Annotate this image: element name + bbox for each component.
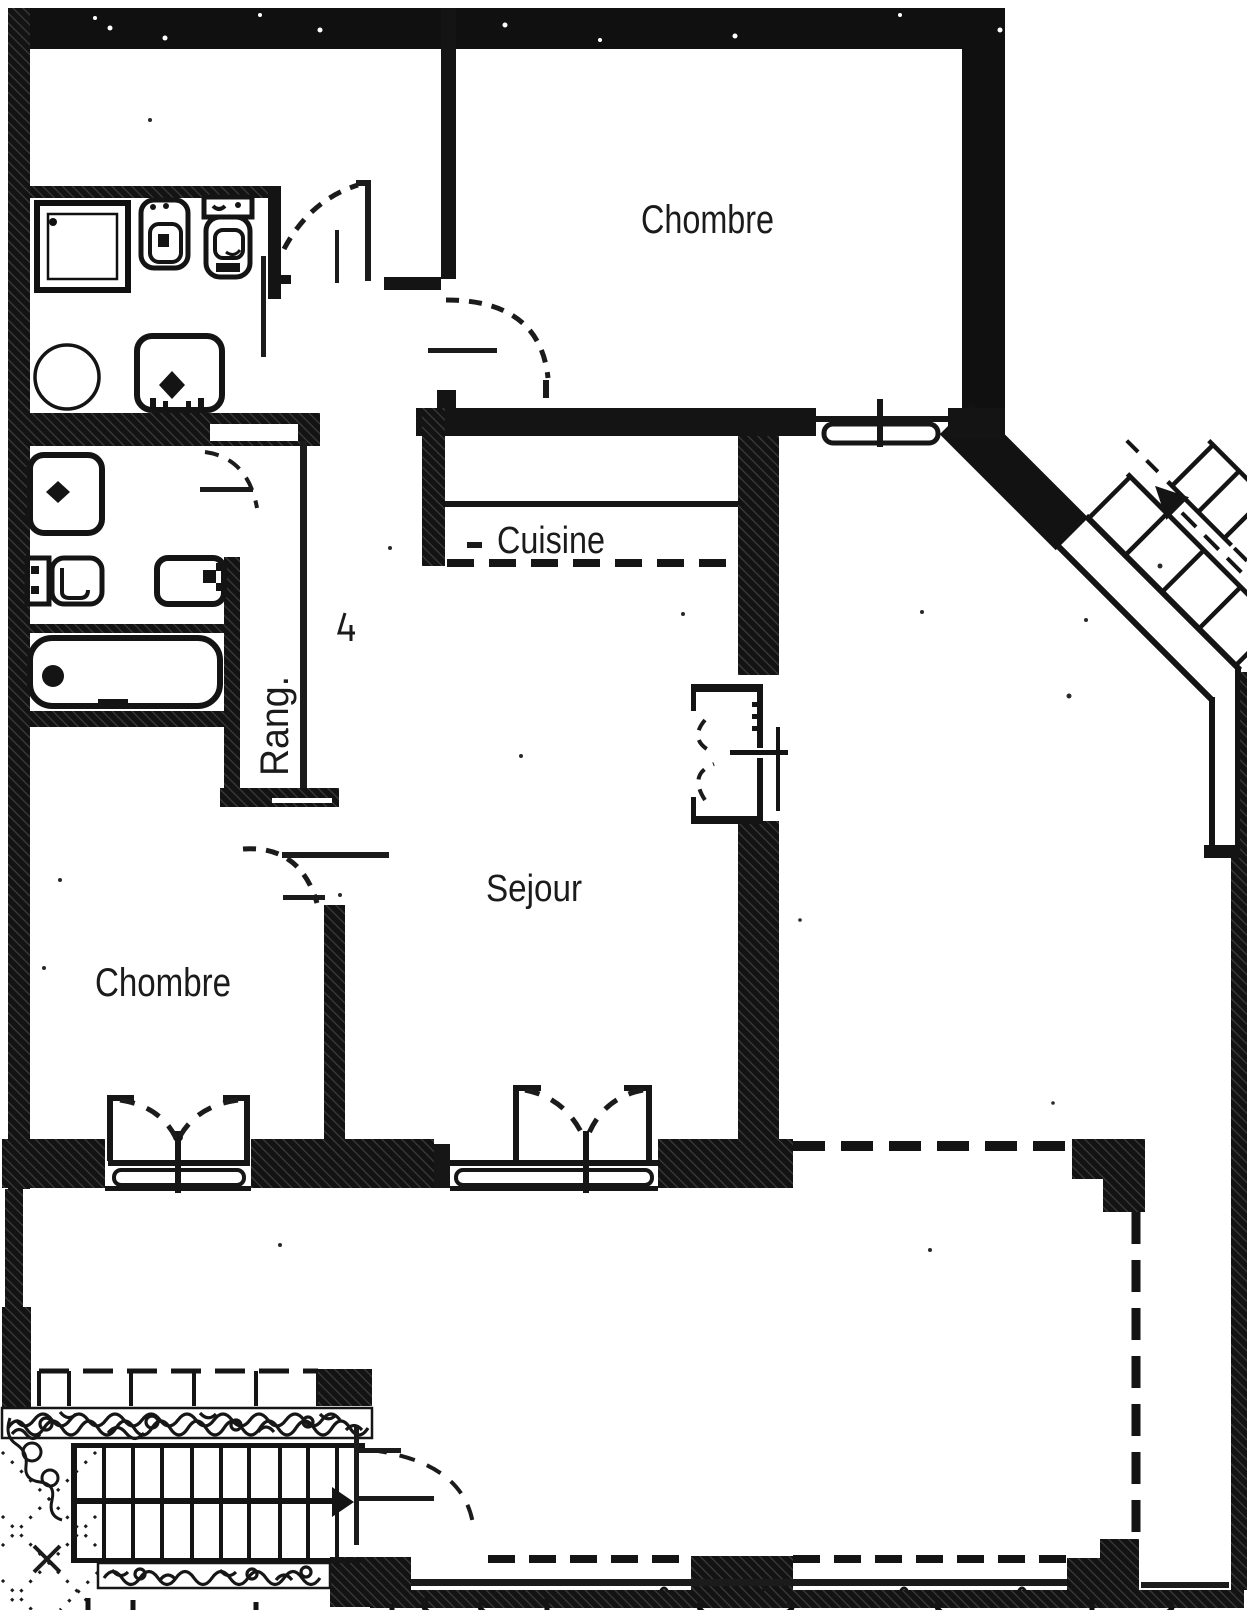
svg-text:Rang.: Rang. (253, 676, 297, 776)
svg-text:Chombre: Chombre (95, 961, 231, 1005)
svg-text:Cuisine: Cuisine (497, 520, 605, 562)
svg-text:Sejour: Sejour (486, 868, 582, 910)
svg-text:Chombre: Chombre (641, 198, 774, 242)
